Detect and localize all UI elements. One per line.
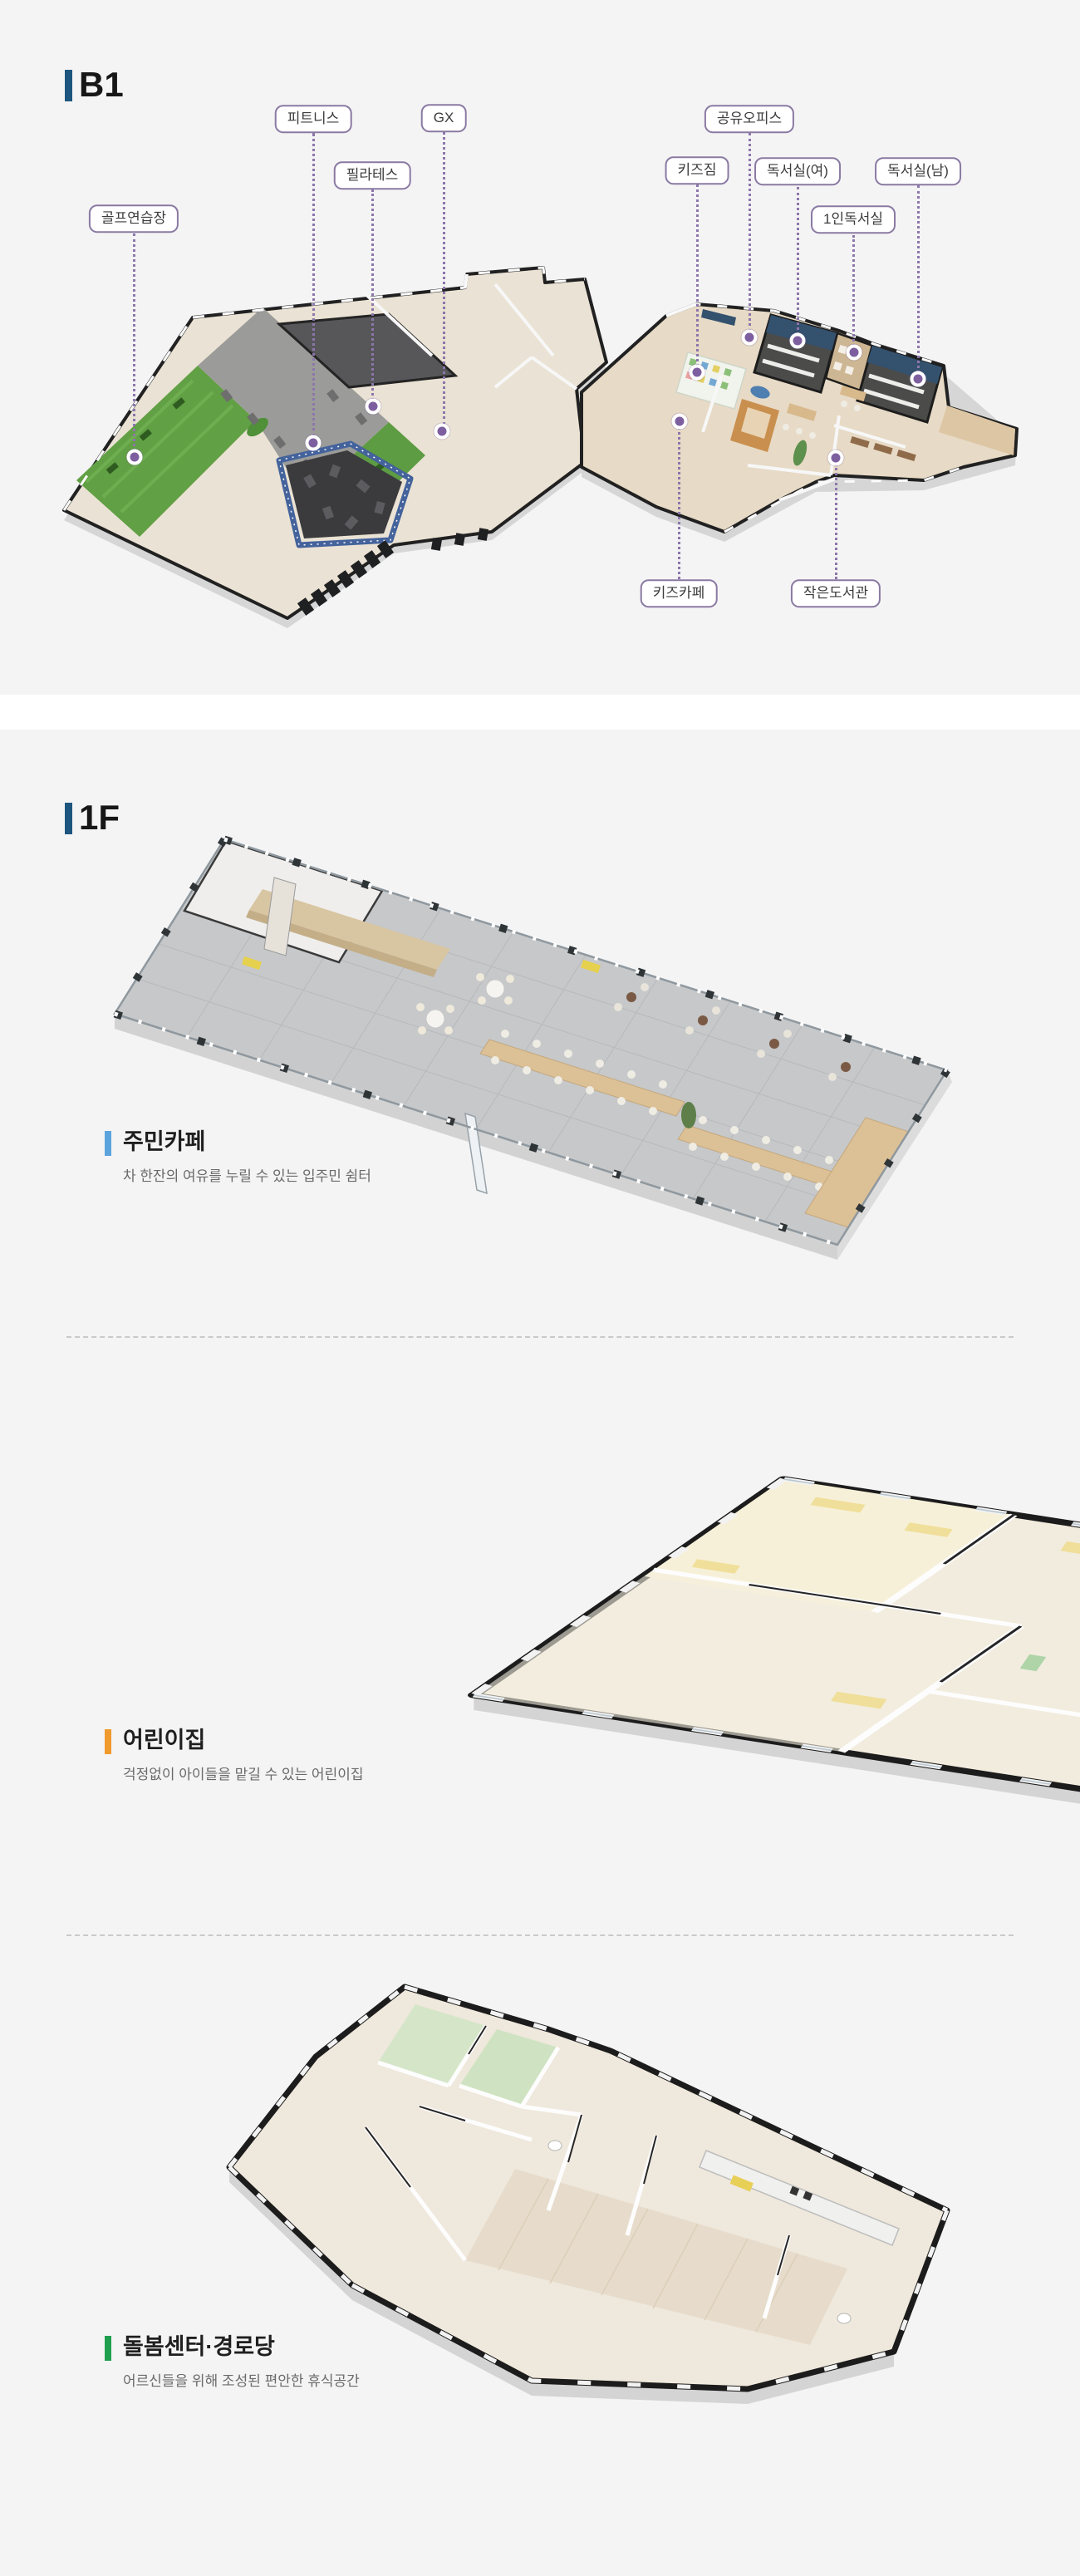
carecenter-title: 돌봄센터·경로당 [123, 2333, 360, 2360]
carecenter-floorplan-image [0, 1961, 1080, 2476]
cafe-floorplan-image [0, 789, 1080, 1371]
marker-pilates [366, 399, 381, 415]
daycare-subtitle: 걱정없이 아이들을 맡길 수 있는 어린이집 [123, 1762, 364, 1783]
marker-library [828, 450, 844, 466]
carecenter-caption: 돌봄센터·경로당 어르신들을 위해 조성된 편안한 휴식공간 [105, 2333, 360, 2390]
label-golf: 골프연습장 [89, 204, 179, 233]
marker-reading-w [790, 333, 806, 349]
daycare-accent-bar [105, 1729, 111, 1754]
divider-1 [66, 1336, 1014, 1338]
leader-gx [443, 131, 445, 425]
leader-office [749, 133, 751, 332]
label-kidscafe: 키즈카페 [641, 579, 718, 607]
cafe-accent-bar [105, 1131, 111, 1156]
marker-golf [127, 450, 143, 465]
leader-kidsgym [696, 184, 699, 366]
daycare-caption: 어린이집 걱정없이 아이들을 맡길 수 있는 어린이집 [105, 1727, 364, 1783]
leader-golf [133, 234, 135, 451]
cafe-caption: 주민카페 차 한잔의 여유를 누릴 수 있는 입주민 쉼터 [105, 1128, 371, 1185]
label-reading-m: 독서실(남) [875, 157, 961, 185]
leader-library [835, 464, 837, 579]
leader-reading-1 [852, 235, 855, 347]
leader-reading-m [917, 185, 920, 373]
leader-reading-w [797, 187, 799, 335]
marker-fitness [306, 435, 322, 451]
daycare-floorplan-image [0, 1446, 1080, 1961]
label-office: 공유오피스 [704, 105, 794, 133]
divider-2 [66, 1934, 1014, 1936]
label-kidsgym: 키즈짐 [665, 156, 729, 184]
community-facility-page: B1 [0, 0, 1080, 2576]
label-pilates: 필라테스 [334, 161, 411, 189]
cafe-title: 주민카페 [123, 1128, 371, 1155]
leader-fitness [312, 133, 315, 437]
leader-pilates [371, 189, 374, 401]
daycare-title: 어린이집 [123, 1727, 364, 1753]
label-library: 작은도서관 [791, 579, 881, 607]
carecenter-accent-bar [105, 2336, 111, 2361]
marker-kidscafe [672, 414, 688, 430]
leader-kidscafe [678, 427, 680, 579]
carecenter-subtitle: 어르신들을 위해 조성된 편안한 휴식공간 [123, 2369, 360, 2390]
marker-reading-m [911, 371, 926, 387]
marker-gx [434, 424, 450, 440]
marker-kidsgym [690, 365, 705, 381]
marker-office [742, 330, 758, 346]
label-fitness: 피트니스 [275, 105, 352, 133]
label-reading-1: 1인독서실 [811, 205, 896, 234]
cafe-subtitle: 차 한잔의 여유를 누릴 수 있는 입주민 쉼터 [123, 1164, 371, 1185]
marker-reading-1 [847, 345, 862, 361]
section-separator [0, 695, 1080, 730]
label-reading-w: 독서실(여) [754, 157, 841, 185]
label-gx: GX [421, 104, 467, 132]
